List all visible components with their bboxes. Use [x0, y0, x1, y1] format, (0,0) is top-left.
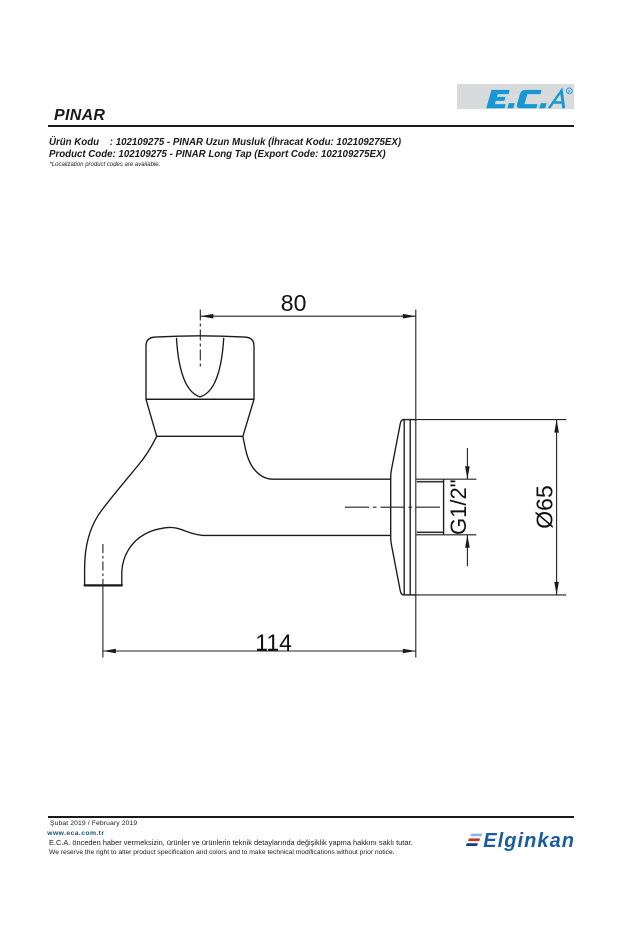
svg-text:G1/2": G1/2" — [446, 479, 471, 535]
svg-text:Ø65: Ø65 — [532, 485, 558, 528]
svg-text:80: 80 — [281, 290, 307, 316]
svg-text:114: 114 — [255, 629, 292, 655]
